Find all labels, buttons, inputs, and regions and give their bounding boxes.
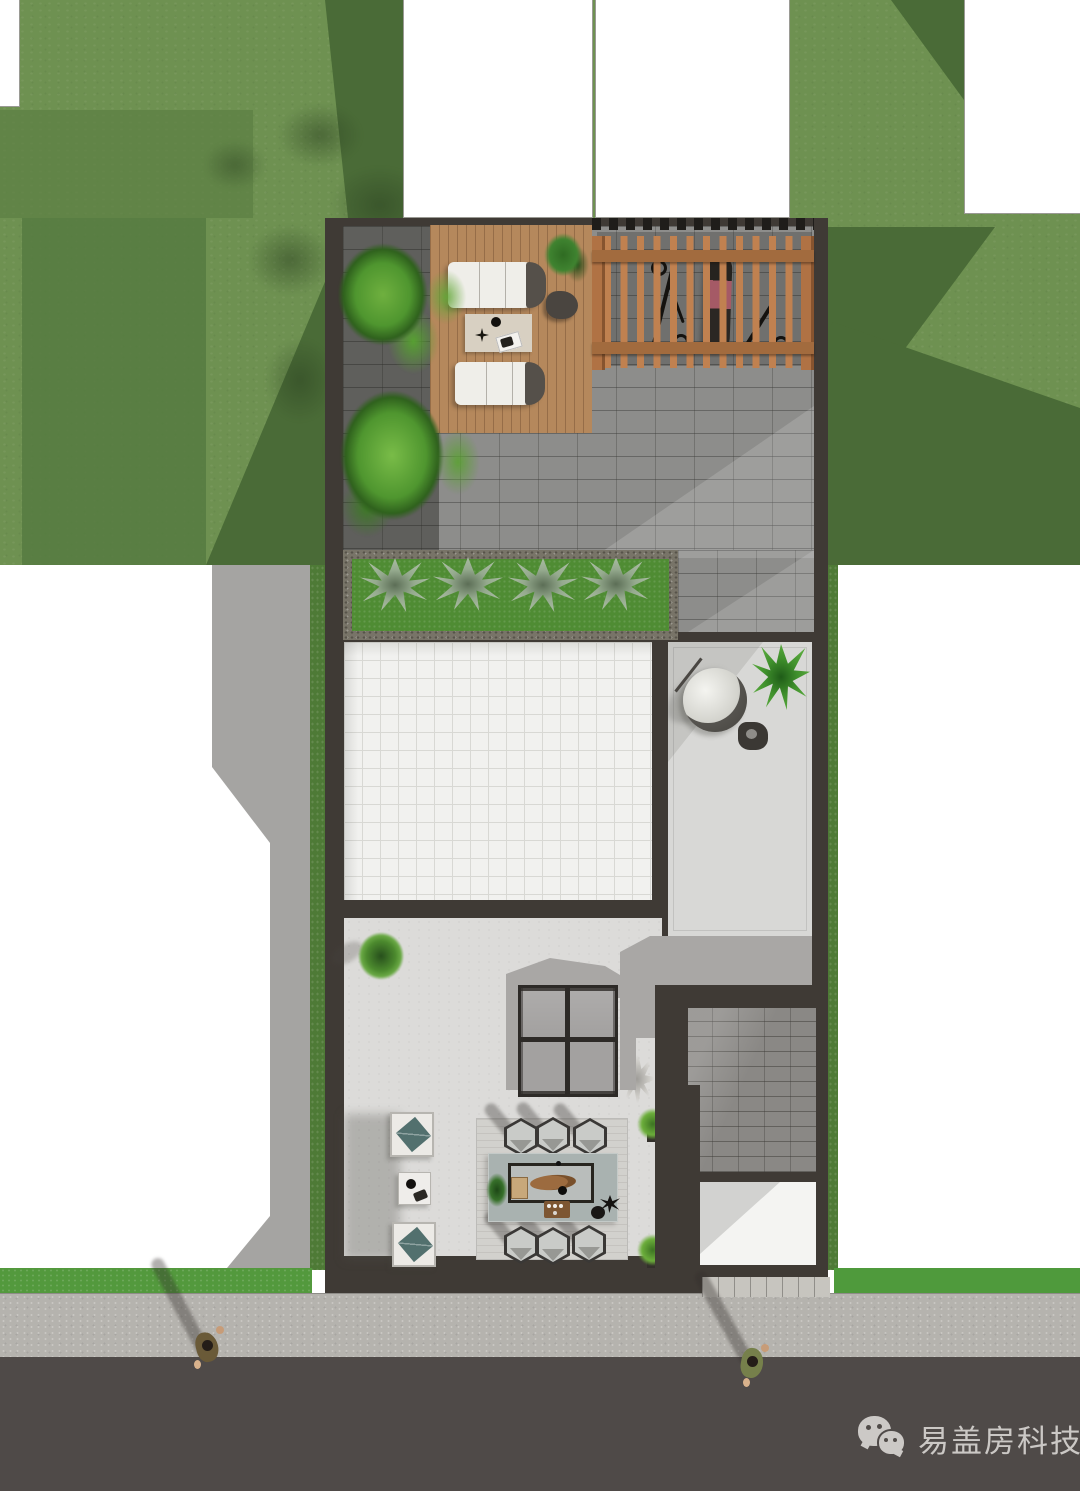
skylight-window [518,985,618,1097]
side-table [398,1172,431,1205]
skylight-grid-roof [344,642,652,900]
side-path [212,565,310,1268]
plot-notch [212,565,310,1268]
table-item [556,1161,561,1166]
table-plant [486,1173,508,1207]
tea-cups [547,1204,551,1208]
neighbor-building-roof [403,0,593,218]
bamboo-sprig [430,420,486,504]
pedestrian-arm [216,1326,224,1334]
neighbor-building-roof [595,0,790,218]
wechat-icon [858,1412,908,1460]
armchair [390,1112,434,1157]
tea-tray [544,1201,570,1218]
pedestrian [741,1342,781,1394]
lounge-backrest [525,362,545,405]
pedestrian-head [202,1340,213,1351]
hedge-right [828,565,838,1270]
deck-mat [465,314,532,352]
pedestrian-arm [761,1344,769,1352]
watering-can [546,291,578,319]
terrace-plant [752,644,810,710]
vacant-plot-left [0,565,212,1268]
pedestrian-head [747,1356,758,1367]
pedestrian-foot [194,1360,201,1369]
cushion [396,1117,431,1152]
tea-table [488,1153,618,1222]
table-item [558,1186,567,1195]
courtyard-shrub [352,926,410,986]
entry-floor [700,1182,816,1265]
watermark-text: 易盖房科技 [918,1416,1080,1461]
camera [500,336,514,348]
cup [406,1179,416,1189]
lounge-chair [455,362,545,405]
vacant-plot-right [838,565,1080,1268]
beam-ends [592,218,814,230]
cup [746,729,757,739]
verge-grass-right [834,1268,1080,1295]
entry-paving-blocks [702,1277,830,1297]
cushion [398,1227,433,1262]
cutting-board [511,1177,528,1199]
potted-plant [538,226,594,290]
hedge-left [310,565,325,1270]
ornament [475,328,489,342]
entry-gatehouse [655,985,828,1277]
planting-bed [343,550,678,640]
brand-watermark: 易盖房科技 [858,1404,1068,1466]
pergola [592,226,814,372]
kettle [491,317,501,327]
tray [495,331,522,353]
pergola-rail [592,250,814,262]
pedestrian [196,1326,236,1376]
armchair [392,1222,436,1267]
phone [413,1189,428,1202]
pergola-rail [592,342,814,354]
neighbor-building-roof [0,0,20,107]
bamboo-sprig [420,262,472,332]
dome-chair [683,668,747,732]
sidewalk [0,1293,1080,1357]
wechat-bubble-small [879,1431,904,1454]
courtyard-house-top-view-render: 易盖房科技 [0,0,1080,1491]
entry-tiled-roof [686,1006,816,1174]
side-table [738,722,768,750]
pedestrian-foot [743,1378,750,1387]
entry-floor-shadow [700,1182,816,1265]
middle-terrace [668,642,812,936]
neighbor-building-roof [964,0,1080,214]
